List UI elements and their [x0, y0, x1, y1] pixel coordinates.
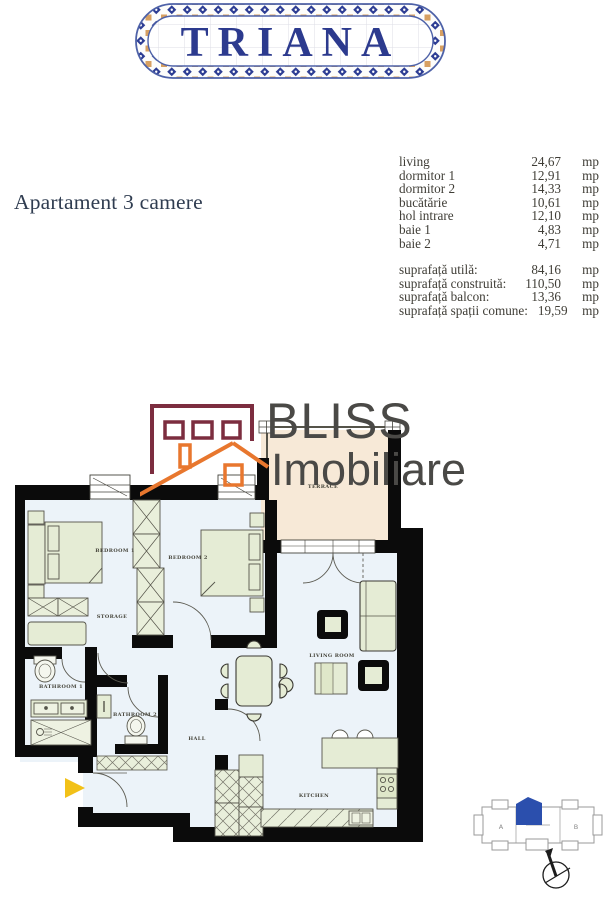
room-label-storage: STORAGE [97, 614, 128, 620]
room-label-bathroom2: BATHROOM 2 [113, 712, 157, 718]
room-label-bathroom1: BATHROOM 1 [39, 684, 83, 690]
surface-value: 19,59 [528, 304, 568, 318]
room-row: baie 24,71mp [399, 237, 599, 251]
room-unit: mp [561, 169, 599, 183]
room-label-living-room: LIVING ROOM [309, 653, 355, 659]
surface-label: suprafață spații comune: [399, 304, 528, 318]
room-label-bedroom2: BEDROOM 2 [168, 555, 208, 561]
room-value: 4,71 [513, 237, 561, 251]
room-label-kitchen: KITCHEN [299, 793, 329, 799]
room-value: 12,10 [513, 209, 561, 223]
surface-unit: mp [568, 304, 599, 318]
room-label: living [399, 155, 513, 169]
logo-wordmark: TRIANA [181, 20, 401, 66]
surface-row: suprafață construită:110,50mp [399, 277, 599, 291]
wardrobe [133, 500, 164, 635]
room-row: bucătărie10,61mp [399, 196, 599, 210]
room-unit: mp [561, 182, 599, 196]
room-unit: mp [561, 155, 599, 169]
room-label: bucătărie [399, 196, 513, 210]
room-row: dormitor 112,91mp [399, 169, 599, 183]
room-measurement-list: living24,67mp dormitor 112,91mp dormitor… [399, 155, 599, 250]
hall-closet [97, 756, 167, 770]
room-label: dormitor 1 [399, 169, 513, 183]
room-row: hol intrare12,10mp [399, 209, 599, 223]
brochure-page: TRIANA Apartament 3 camere living24,67mp… [0, 0, 610, 900]
surface-label: suprafață balcon: [399, 290, 513, 304]
surface-row: suprafață utilă:84,16mp [399, 263, 599, 277]
page-title: Apartament 3 camere [14, 190, 203, 215]
room-unit: mp [561, 209, 599, 223]
room-value: 4,83 [513, 223, 561, 237]
key-plan: A B [468, 773, 608, 898]
watermark-brand-name: BLISS [266, 392, 413, 450]
room-unit: mp [561, 237, 599, 251]
room-label: baie 1 [399, 223, 513, 237]
room-row: baie 14,83mp [399, 223, 599, 237]
room-value: 12,91 [513, 169, 561, 183]
room-label-bedroom1: BEDROOM 1 [95, 548, 135, 554]
sliding-door [281, 540, 375, 553]
surface-row: suprafață spații comune:19,59mp [399, 304, 599, 318]
room-label: baie 2 [399, 237, 513, 251]
room-value: 14,33 [513, 182, 561, 196]
highlighted-unit [516, 797, 542, 825]
room-unit: mp [561, 196, 599, 210]
room-value: 10,61 [513, 196, 561, 210]
surface-unit: mp [561, 290, 599, 304]
surface-list: suprafață utilă:84,16mp suprafață constr… [399, 263, 599, 317]
room-label-hall: HALL [188, 736, 205, 742]
room-label: hol intrare [399, 209, 513, 223]
surface-unit: mp [561, 277, 599, 291]
surface-value: 84,16 [513, 263, 561, 277]
surface-unit: mp [561, 263, 599, 277]
entrance-arrow-icon [65, 778, 85, 798]
room-label: dormitor 2 [399, 182, 513, 196]
room-value: 24,67 [513, 155, 561, 169]
surface-row: suprafață balcon:13,36mp [399, 290, 599, 304]
section-b-label: B [574, 823, 578, 831]
watermark-brand-subname: Imobiliare [271, 444, 466, 496]
triana-logo: TRIANA [133, 2, 448, 80]
surface-value: 110,50 [513, 277, 561, 291]
compass-icon [543, 848, 570, 888]
section-a-label: A [499, 823, 504, 831]
room-row: living24,67mp [399, 155, 599, 169]
room-row: dormitor 214,33mp [399, 182, 599, 196]
surface-label: suprafață construită: [399, 277, 513, 291]
surface-value: 13,36 [513, 290, 561, 304]
surface-label: suprafață utilă: [399, 263, 513, 277]
room-unit: mp [561, 223, 599, 237]
